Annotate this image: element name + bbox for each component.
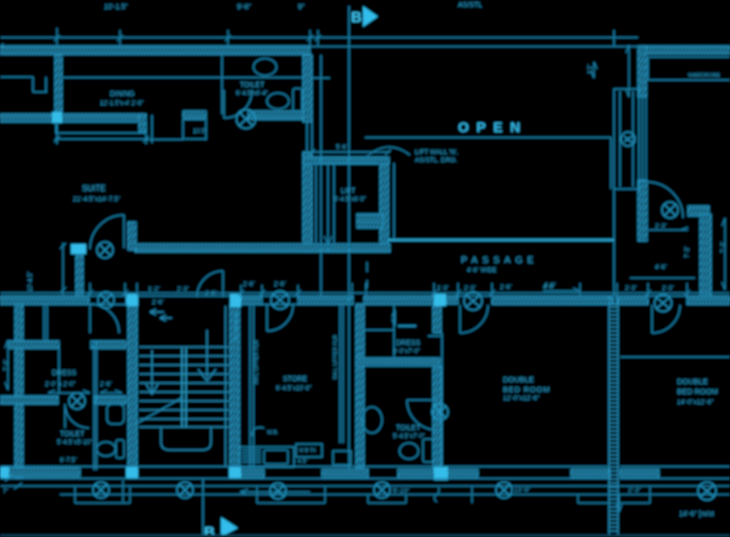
svg-text:2'-6": 2'-6" — [500, 285, 512, 291]
svg-text:21'-4.5"x14'-7.5": 21'-4.5"x14'-7.5" — [73, 196, 121, 203]
svg-text:9": 9" — [298, 4, 305, 11]
svg-text:DOUBLE: DOUBLE — [503, 375, 534, 384]
svg-text:4': 4' — [0, 44, 4, 50]
svg-text:5'-4.5"x6'-9": 5'-4.5"x6'-9" — [334, 197, 366, 203]
svg-text:13'-9": 13'-9" — [514, 487, 531, 494]
svg-text:2'-3": 2'-3" — [628, 487, 642, 494]
svg-text:2'-0" x 2'-0": 2'-0" x 2'-0" — [45, 382, 75, 388]
svg-text:STORE: STORE — [283, 376, 307, 383]
svg-text:10'-4.5": 10'-4.5" — [28, 272, 34, 292]
svg-text:14'-0"x12'-6": 14'-0"x12'-6" — [677, 399, 714, 406]
svg-text:7'-0": 7'-0" — [4, 359, 10, 371]
svg-text:14'-6" [m/st: 14'-6" [m/st — [679, 511, 714, 518]
svg-text:WARDROBE: WARDROBE — [688, 73, 721, 79]
svg-text:7": 7" — [3, 489, 8, 495]
svg-text:LIFT: LIFT — [341, 188, 356, 195]
svg-text:B: B — [351, 9, 362, 26]
svg-text:SUITE: SUITE — [82, 184, 106, 193]
svg-text:W B TK: W B TK — [299, 448, 317, 454]
svg-text:5'-6": 5'-6" — [336, 145, 348, 151]
svg-text:10.5": 10.5" — [193, 129, 207, 135]
svg-text:2'-3": 2'-3" — [662, 286, 674, 292]
svg-text:1'-2": 1'-2" — [148, 287, 160, 293]
svg-text:BED ROOM: BED ROOM — [503, 385, 550, 394]
svg-text:2'-6": 2'-6" — [205, 291, 217, 297]
svg-text:5'-10": 5'-10" — [393, 488, 410, 495]
svg-text:2'-3": 2'-3" — [177, 287, 189, 293]
svg-text:2'-6": 2'-6" — [274, 282, 286, 288]
svg-text:7'-3": 7'-3" — [685, 246, 691, 258]
svg-text:3'-0"x7'-0": 3'-0"x7'-0" — [393, 349, 420, 355]
svg-text:12'-0"x12'-6": 12'-0"x12'-6" — [503, 395, 540, 402]
svg-text:W.B.: W.B. — [267, 430, 279, 436]
svg-text:RAIL UPPER FLR: RAIL UPPER FLR — [254, 340, 260, 384]
svg-text:2'-3": 2'-3" — [655, 224, 667, 230]
svg-text:DRESS: DRESS — [52, 370, 76, 377]
svg-text:1'2": 1'2" — [588, 64, 594, 74]
svg-text:PASSAGE: PASSAGE — [461, 255, 538, 265]
svg-text:OPEN: OPEN — [458, 119, 528, 135]
svg-text:2'-6": 2'-6" — [100, 382, 112, 388]
svg-text:1'-3": 1'-3" — [437, 286, 449, 292]
svg-text:12'-1.5"x-4' 2'-6": 12'-1.5"x-4' 2'-6" — [100, 101, 143, 107]
svg-text:AS/STL. DRG.: AS/STL. DRG. — [415, 157, 457, 164]
svg-text:6'-7.5": 6'-7.5" — [60, 458, 77, 464]
svg-text:RAIL UPPER FLR: RAIL UPPER FLR — [333, 335, 339, 379]
svg-text:4'-6": 4'-6" — [655, 265, 667, 271]
svg-text:2'-6": 2'-6" — [243, 282, 255, 288]
svg-text:4'-6": 4'-6" — [544, 283, 556, 289]
svg-text:TOILET: TOILET — [60, 431, 85, 438]
svg-text:2'-6": 2'-6" — [152, 300, 164, 306]
svg-text:6'-4.5"x6'-4": 6'-4.5"x6'-4" — [236, 91, 268, 97]
svg-text:LIFT WALL 'N',: LIFT WALL 'N', — [415, 149, 458, 156]
svg-text:- 4.5": - 4.5" — [294, 459, 308, 465]
svg-text:DOUBLE: DOUBLE — [677, 377, 708, 386]
svg-text:4'-6" WIDE: 4'-6" WIDE — [467, 268, 496, 274]
svg-text:6'-4.5"x13'-6": 6'-4.5"x13'-6" — [276, 386, 311, 392]
svg-text:9'-6": 9'-6" — [237, 4, 251, 11]
svg-text:2'-3": 2'-3" — [464, 286, 476, 292]
svg-text:7'-3": 7'-3" — [721, 241, 727, 253]
svg-text:5'-4.5"x5'-10": 5'-4.5"x5'-10" — [57, 440, 92, 446]
svg-text:2'-3": 2'-3" — [625, 286, 637, 292]
svg-text:BED ROOM: BED ROOM — [677, 387, 718, 396]
svg-text:TOILET: TOILET — [240, 82, 265, 89]
svg-text:5'-4.5"x7'-0": 5'-4.5"x7'-0" — [393, 434, 425, 440]
svg-text:TOILET: TOILET — [396, 425, 421, 432]
svg-text:10'-1.5": 10'-1.5" — [104, 4, 128, 11]
svg-text:DRESS: DRESS — [396, 340, 420, 347]
svg-text:DINING: DINING — [110, 91, 135, 98]
svg-text:AS/STL: AS/STL — [458, 2, 482, 9]
